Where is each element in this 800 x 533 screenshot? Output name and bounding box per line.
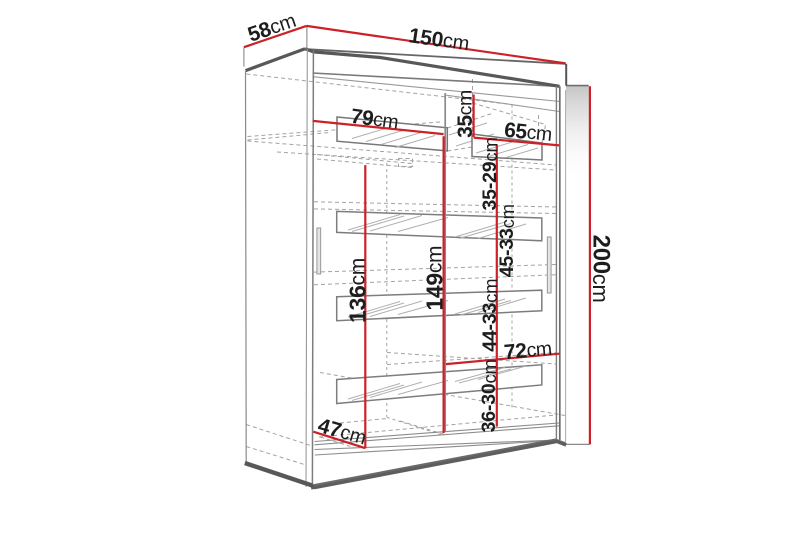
- svg-text:45-33cm: 45-33cm: [496, 204, 518, 277]
- svg-text:149cm: 149cm: [422, 246, 448, 311]
- svg-text:72cm: 72cm: [503, 337, 553, 364]
- svg-text:44-33cm: 44-33cm: [479, 279, 501, 352]
- svg-text:36-30cm: 36-30cm: [478, 359, 500, 432]
- svg-text:35cm: 35cm: [454, 90, 477, 138]
- svg-text:200cm: 200cm: [588, 235, 615, 303]
- svg-text:35-29cm: 35-29cm: [479, 137, 501, 210]
- svg-text:136cm: 136cm: [344, 258, 370, 323]
